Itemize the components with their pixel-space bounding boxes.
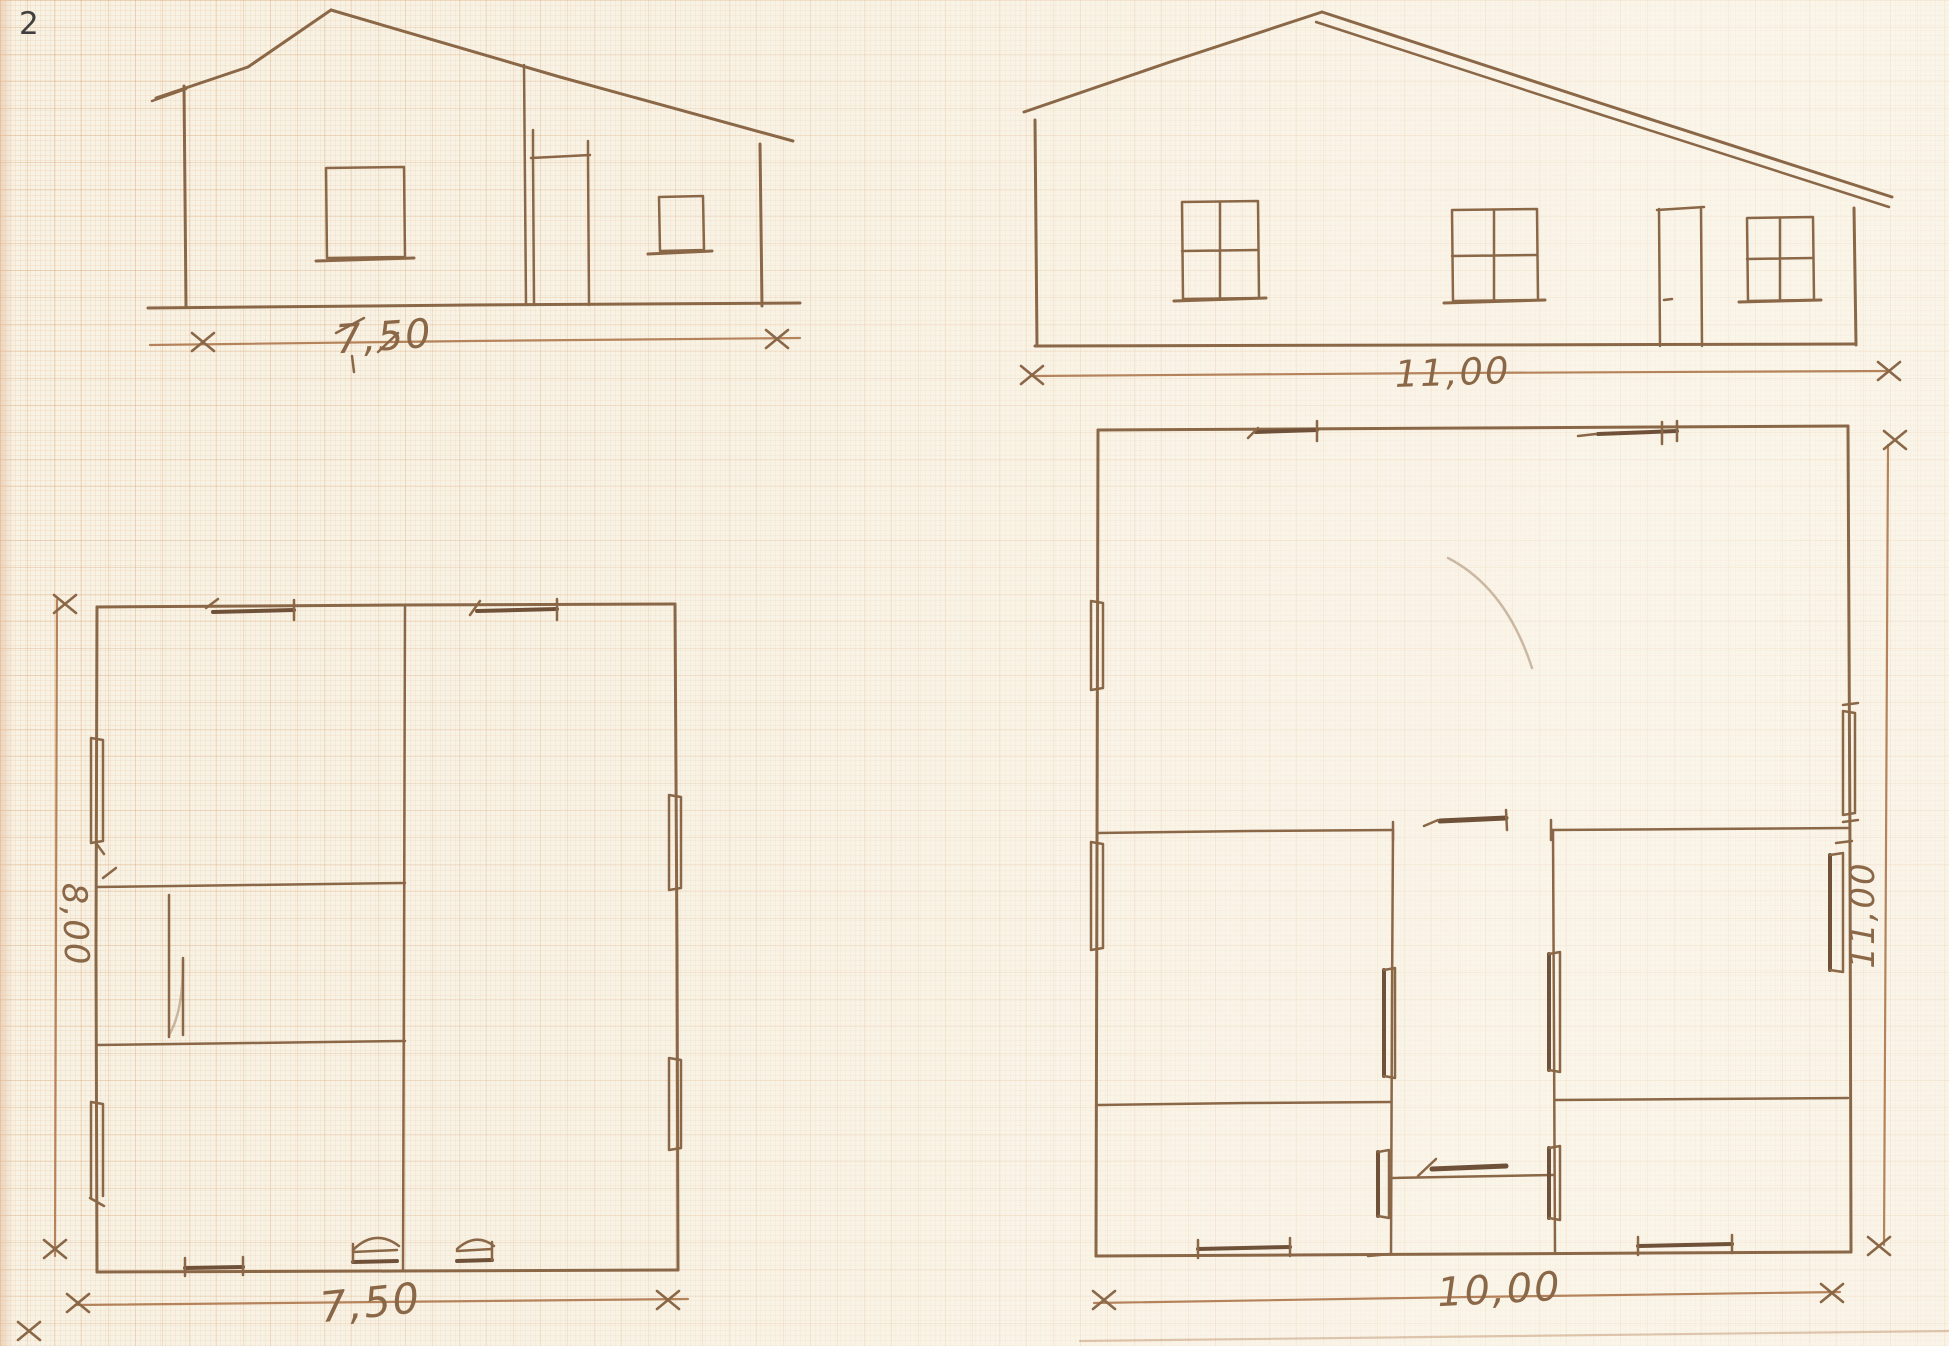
right-elevation-dimension: 11,00 <box>1021 349 1900 396</box>
right-elevation-window-1 <box>1174 201 1266 301</box>
left-elevation-dimension: 7,50 <box>150 311 800 372</box>
left-elevation-door <box>531 130 590 305</box>
left-plan-window-right-2 <box>669 1058 681 1150</box>
left-plan-depth-label: 8,00 <box>54 882 97 967</box>
right-plan-interior-walls <box>1098 820 1848 1256</box>
right-elevation: 11,00 <box>1021 12 1900 396</box>
graph-paper-page: 2 <box>0 0 1949 1346</box>
right-plan-vestibule-door <box>1418 1159 1506 1176</box>
left-plan-window-top-2 <box>470 599 557 620</box>
right-floor-plan: 10,00 11,00 <box>1080 421 1949 1341</box>
right-plan-depth-dimension: 11,00 <box>1843 431 1906 1255</box>
left-elevation-walls <box>148 65 800 308</box>
right-plan-outer-walls <box>1096 426 1851 1256</box>
left-elevation-roof <box>152 10 793 141</box>
right-plan-hall-door-lintel <box>1424 558 1532 830</box>
right-elevation-width-label: 11,00 <box>1394 349 1511 396</box>
left-plan-door-bottom-2 <box>457 1240 494 1261</box>
left-plan-depth-dimension: 8,00 <box>44 595 96 1258</box>
left-floor-plan: 8,00 7,50 <box>18 595 688 1340</box>
sketch-canvas: 7,50 <box>0 0 1949 1346</box>
left-elevation-width-label: 7,50 <box>334 311 434 364</box>
right-plan-window-top-1 <box>1248 421 1317 441</box>
right-plan-depth-label: 11,00 <box>1843 861 1883 968</box>
right-elevation-walls <box>1035 120 1856 346</box>
right-elevation-roof <box>1024 12 1892 207</box>
left-elevation: 7,50 <box>148 10 800 372</box>
left-plan-width-label: 7,50 <box>317 1273 423 1332</box>
left-elevation-window-2 <box>648 196 712 254</box>
left-plan-interior-door <box>169 895 183 1037</box>
left-plan-width-dimension: 7,50 <box>18 1273 688 1340</box>
right-elevation-window-3 <box>1739 217 1821 302</box>
right-plan-hall-door-left-1 <box>1384 968 1395 1078</box>
left-elevation-window-1 <box>316 167 414 261</box>
right-plan-hall-door-left-2 <box>1378 1150 1389 1218</box>
left-plan-door-bottom-1 <box>353 1238 399 1262</box>
right-elevation-window-2 <box>1444 209 1545 303</box>
right-elevation-door <box>1657 207 1704 346</box>
right-plan-window-top-2 <box>1578 421 1677 444</box>
left-plan-window-top-1 <box>206 599 294 620</box>
left-plan-outer-walls <box>96 604 678 1272</box>
right-plan-width-label: 10,00 <box>1436 1264 1563 1316</box>
right-plan-width-dimension: 10,00 <box>1080 1264 1949 1341</box>
left-plan-interior-walls <box>97 607 405 1270</box>
